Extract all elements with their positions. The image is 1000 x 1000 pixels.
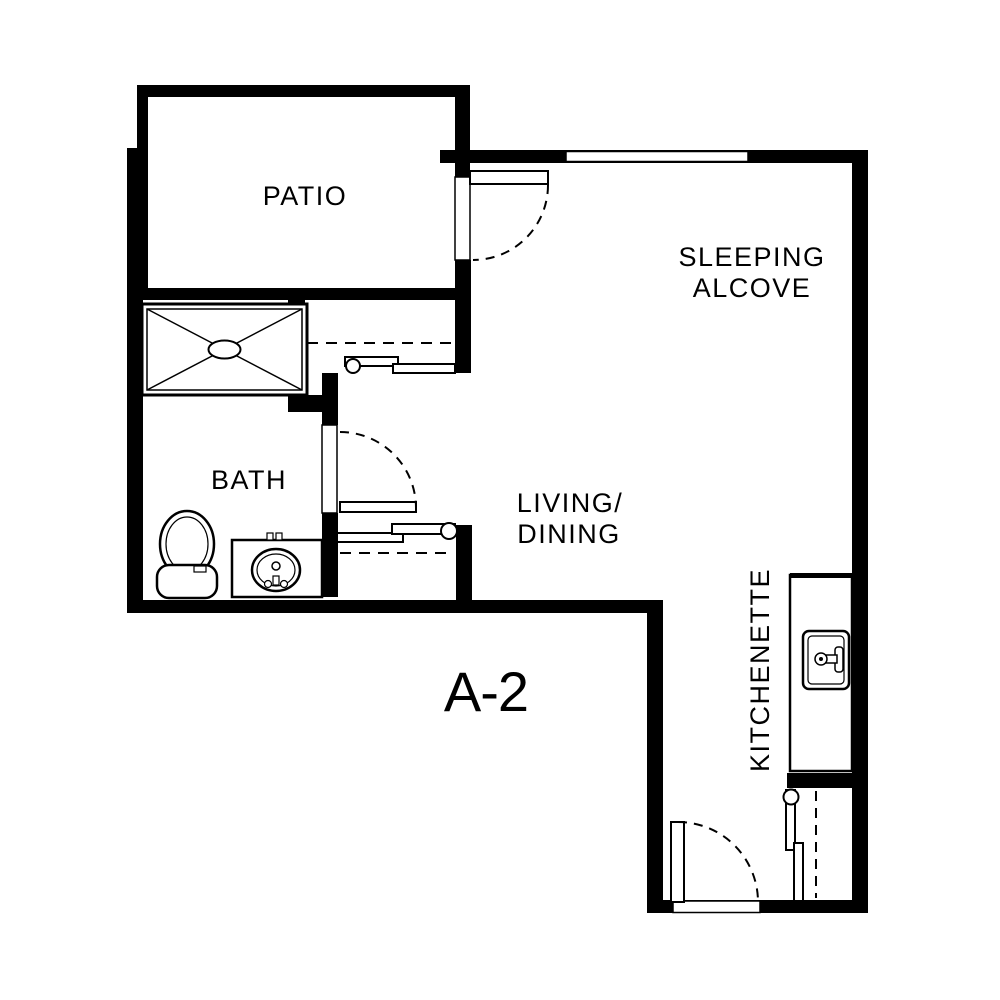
entry-door-threshold <box>673 901 760 913</box>
labels: PATIO SLEEPING ALCOVE BATH LIVING/ DININ… <box>211 181 826 772</box>
counter-top-edge <box>790 573 852 578</box>
sleeping-alcove-label-line1: SLEEPING <box>678 242 825 272</box>
toilet-icon <box>157 511 217 598</box>
walls <box>127 85 868 913</box>
entry-door-swing-arc <box>678 822 758 902</box>
kitchenette-label: KITCHENETTE <box>745 568 775 772</box>
closet1-slider-panel-2 <box>393 364 455 373</box>
vanity-tap-left <box>265 581 272 588</box>
wall-kitchenette-lower <box>787 773 868 788</box>
toilet-flush-lever <box>194 566 206 572</box>
bath-door-swing-arc <box>340 432 416 508</box>
wall-patio-top <box>137 85 467 97</box>
toilet-tank <box>157 565 217 598</box>
vanity-tap-right <box>281 581 288 588</box>
bath-door-jamb <box>322 425 337 513</box>
vanity-sink-icon <box>232 533 322 597</box>
sleeping-alcove-label-line2: ALCOVE <box>693 273 812 303</box>
kitchen-faucet-dot <box>819 657 823 661</box>
wall-bath-right-upper <box>322 373 338 425</box>
vanity-faucet-handle-2 <box>276 533 282 540</box>
wall-entry-left <box>647 600 663 913</box>
floor-plan-canvas: PATIO SLEEPING ALCOVE BATH LIVING/ DININ… <box>0 0 1000 1000</box>
bath-door-leaf <box>340 502 416 512</box>
window-top-icon <box>566 152 748 162</box>
wardrobe-closet-lower-icon <box>337 523 457 553</box>
unit-label: A-2 <box>444 660 528 723</box>
patio-door-jamb <box>455 177 470 260</box>
entry-closet-icon <box>784 790 817 902</box>
patio-label: PATIO <box>263 181 348 211</box>
wall-bath-right-lower <box>322 513 338 597</box>
entry-closet-handle <box>784 790 799 805</box>
vanity-tap-body <box>273 576 279 585</box>
shower-pan-icon <box>142 304 307 395</box>
living-dining-label-line2: DINING <box>517 519 621 549</box>
floor-plan-drawing: PATIO SLEEPING ALCOVE BATH LIVING/ DININ… <box>0 0 1000 1000</box>
bath-label: BATH <box>211 465 287 495</box>
wall-closet2-right <box>456 525 472 600</box>
wardrobe-closet-upper-icon <box>307 343 455 373</box>
entry-door-leaf <box>671 822 684 902</box>
closet1-handle <box>346 359 360 373</box>
patio-door-swing-arc <box>473 185 548 260</box>
wall-patio-right <box>455 85 470 177</box>
wall-patio-right-lower <box>455 260 471 373</box>
vanity-faucet-handle-1 <box>267 533 273 540</box>
wall-living-bottom <box>127 600 663 613</box>
vanity-drain <box>272 562 280 570</box>
closet2-handle <box>441 523 457 539</box>
toilet-bowl-inner <box>166 517 208 571</box>
entry-closet-panel-2 <box>794 843 803 901</box>
patio-door-leaf <box>470 171 548 184</box>
wall-right-outer <box>852 150 868 913</box>
kitchenette-counter <box>790 573 852 771</box>
shower-drain <box>209 341 241 359</box>
living-dining-label-line1: LIVING/ <box>517 488 624 518</box>
